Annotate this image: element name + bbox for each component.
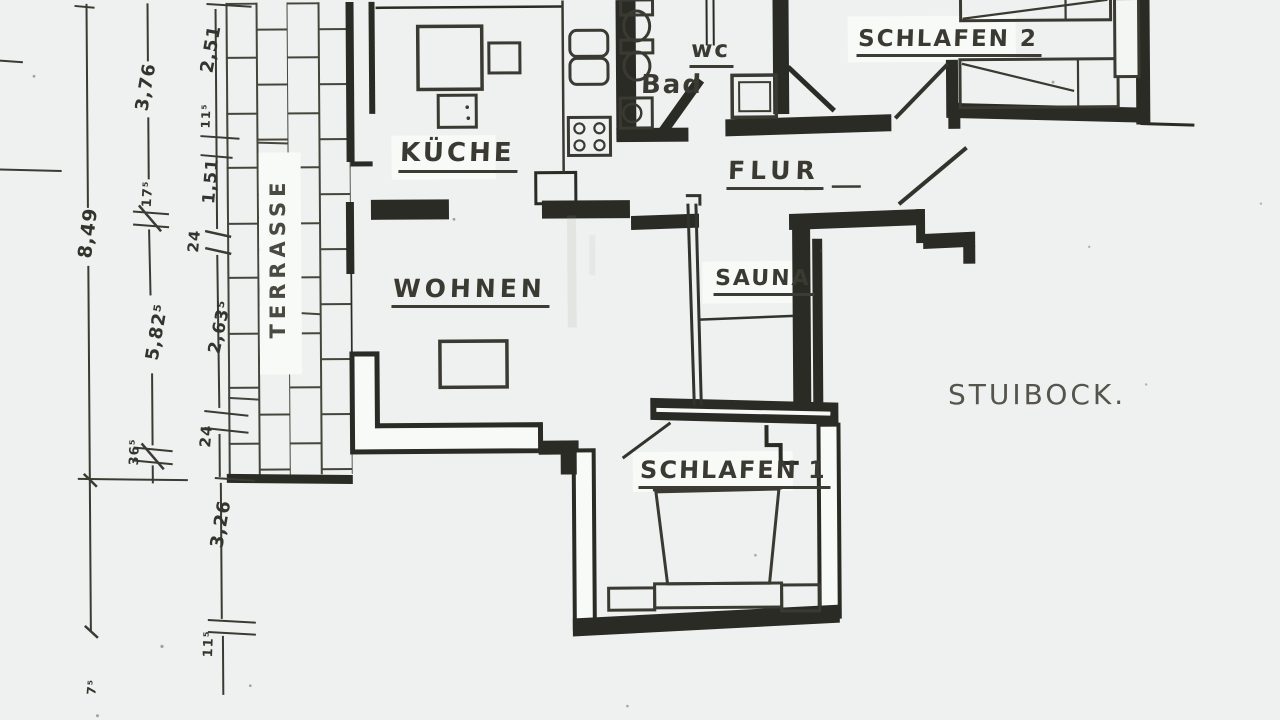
stove-icon: [568, 117, 610, 155]
dim-label-11-5-b: 11⁵: [201, 630, 217, 657]
shower-icon: [732, 75, 776, 117]
sink-basin-icon: [570, 30, 608, 56]
sink-basin-icon: [570, 58, 608, 84]
room-label-kueche: KÜCHE: [398, 138, 519, 173]
dim-label-11-5-a: 11⁵: [199, 103, 214, 128]
room-label-terrasse: TERRASSE: [266, 178, 290, 339]
room-label-schlafen1: SCHLAFEN 1: [638, 456, 831, 489]
dim-label-24-b: 24: [196, 424, 216, 448]
dim-label-17-5: 17⁵: [140, 180, 156, 208]
dim-label-36-5: 36⁵: [127, 438, 143, 465]
kitchen-cabinet-icon: [438, 95, 476, 127]
room-label-schlafen2: SCHLAFEN 2: [856, 26, 1042, 57]
counter-edge: [562, 1, 563, 173]
nightstand-icon: [609, 588, 655, 610]
nightstand-icon: [1114, 0, 1139, 77]
kitchen-table-icon: [418, 26, 482, 89]
dim-label-24-a: 24: [184, 229, 204, 253]
bed-schlafen1-icon: [608, 488, 820, 612]
room-label-wohnen: WOHNEN: [391, 274, 550, 308]
dim-label-7-5: 7⁵: [84, 679, 99, 696]
handwritten-note-stuibock: STUIBOCK.: [948, 378, 1126, 411]
wohnen-table-icon: [440, 341, 507, 387]
sauna-bench-line: [700, 316, 794, 320]
floor-plan-drawing: [0, 0, 1280, 720]
scanned-floor-plan: KÜCHE Bad wc FLUR SCHLAFEN 2 WOHNEN SAUN…: [0, 0, 1280, 720]
kitchen-chair-icon: [489, 43, 520, 73]
room-label-flur: FLUR: [726, 156, 824, 190]
dim-label-1-51: 1,51: [199, 157, 223, 205]
room-label-wc: wc: [689, 37, 734, 68]
room-label-sauna: SAUNA: [713, 266, 815, 296]
room-label-bad: Bad: [640, 70, 703, 100]
